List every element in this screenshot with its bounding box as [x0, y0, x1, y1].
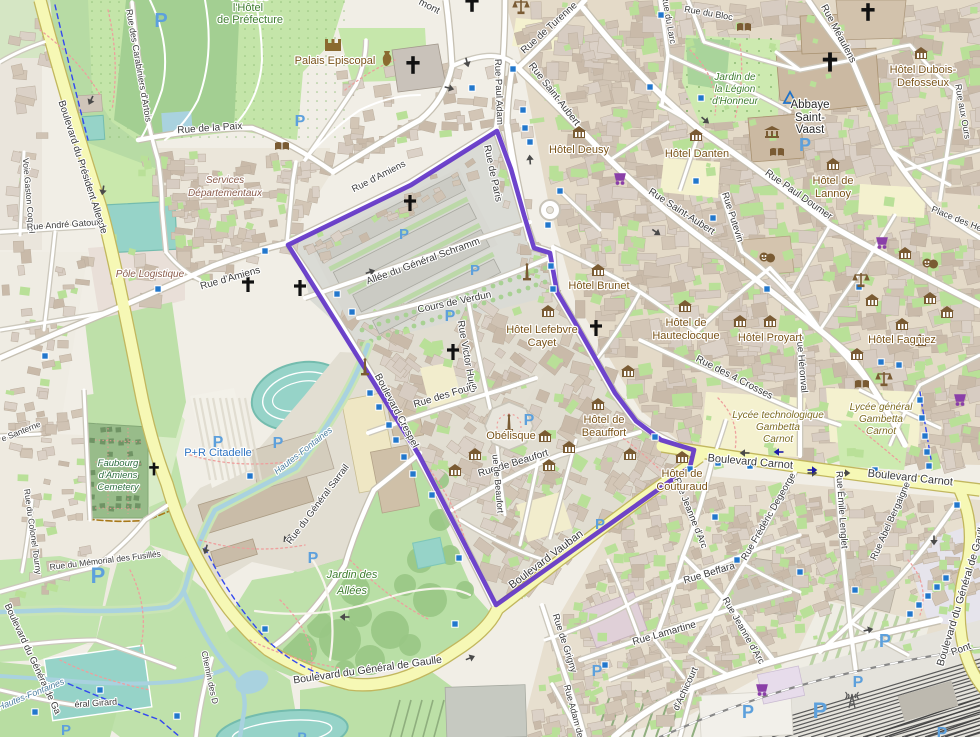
- svg-text:Hôtel de: Hôtel de: [584, 414, 625, 426]
- svg-text:d'Amiens: d'Amiens: [99, 470, 138, 481]
- svg-text:P: P: [937, 725, 948, 737]
- svg-text:Hôtel de: Hôtel de: [666, 317, 707, 329]
- svg-text:Lycée général: Lycée général: [850, 402, 913, 413]
- svg-text:Beauffort: Beauffort: [582, 427, 626, 439]
- svg-text:Hôtel de: Hôtel de: [662, 468, 703, 480]
- svg-text:Vaast: Vaast: [796, 124, 825, 136]
- svg-text:P: P: [813, 698, 828, 723]
- svg-text:Gambetta: Gambetta: [756, 422, 800, 433]
- svg-text:Couturaud: Couturaud: [656, 481, 707, 493]
- svg-text:P: P: [799, 135, 811, 155]
- svg-text:P: P: [295, 113, 306, 130]
- svg-text:Cemetery: Cemetery: [97, 482, 139, 493]
- svg-text:Carnot: Carnot: [763, 434, 794, 445]
- svg-text:Jardin de: Jardin de: [713, 72, 756, 83]
- svg-text:P: P: [297, 729, 306, 737]
- svg-text:Allées: Allées: [336, 585, 367, 597]
- svg-text:Lycée technologique: Lycée technologique: [732, 410, 824, 421]
- svg-text:d'Honneur: d'Honneur: [712, 96, 759, 107]
- svg-text:Hauteclocque: Hauteclocque: [652, 330, 719, 342]
- svg-text:Hôtel Fagniez: Hôtel Fagniez: [868, 334, 936, 346]
- svg-text:Hôtel Dubois-: Hôtel Dubois-: [890, 64, 957, 76]
- svg-text:P: P: [879, 631, 891, 651]
- svg-text:Hôtel Lefebvre: Hôtel Lefebvre: [506, 324, 578, 336]
- svg-text:P: P: [592, 663, 603, 680]
- svg-text:Cayet: Cayet: [528, 337, 557, 349]
- svg-text:P: P: [595, 516, 605, 533]
- svg-text:P+R Citadelle: P+R Citadelle: [184, 447, 252, 459]
- svg-text:la Légion: la Légion: [715, 84, 756, 95]
- svg-text:P: P: [154, 10, 167, 32]
- svg-text:P: P: [742, 702, 754, 722]
- svg-text:l'Hôtel: l'Hôtel: [233, 2, 263, 14]
- svg-text:P: P: [399, 226, 409, 243]
- svg-text:Jardin des: Jardin des: [326, 569, 378, 581]
- svg-text:P: P: [853, 674, 864, 691]
- svg-text:P: P: [61, 722, 71, 737]
- svg-text:Hôtel Proyart: Hôtel Proyart: [738, 332, 802, 344]
- svg-text:Pôle Logistique: Pôle Logistique: [116, 269, 185, 280]
- svg-text:Defosseux: Defosseux: [897, 77, 949, 89]
- svg-text:P: P: [273, 435, 284, 452]
- svg-text:Hôtel Danten: Hôtel Danten: [665, 148, 729, 160]
- svg-text:Carnot: Carnot: [866, 426, 897, 437]
- svg-text:Palais Episcopal: Palais Episcopal: [295, 55, 376, 67]
- svg-text:de Préfecture: de Préfecture: [217, 14, 283, 26]
- svg-text:Saint-: Saint-: [795, 112, 825, 124]
- svg-text:Hôtel de: Hôtel de: [813, 175, 854, 187]
- svg-text:P: P: [308, 550, 319, 567]
- svg-text:Lannoy: Lannoy: [815, 188, 852, 200]
- svg-text:P: P: [470, 262, 480, 279]
- svg-text:Faubourg: Faubourg: [98, 458, 139, 469]
- svg-text:P: P: [524, 412, 535, 429]
- svg-text:Gambetta: Gambetta: [859, 414, 903, 425]
- svg-text:Obélisque: Obélisque: [486, 430, 536, 442]
- svg-text:Services: Services: [206, 175, 244, 186]
- svg-text:P: P: [445, 308, 456, 325]
- svg-text:Hôtel Brunet: Hôtel Brunet: [568, 280, 629, 292]
- svg-text:Départementaux: Départementaux: [188, 188, 263, 199]
- svg-text:Abbaye: Abbaye: [790, 99, 829, 111]
- svg-text:Hôtel Deusy: Hôtel Deusy: [549, 144, 609, 156]
- svg-text:Rue Paul Adam: Rue Paul Adam: [492, 59, 505, 125]
